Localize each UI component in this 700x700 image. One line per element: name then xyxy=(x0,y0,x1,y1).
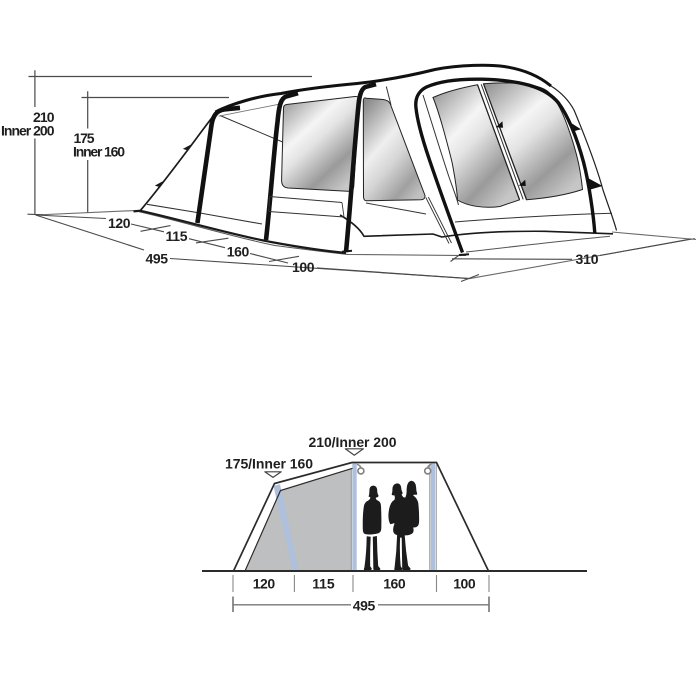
svg-text:160: 160 xyxy=(227,243,250,259)
svg-text:115: 115 xyxy=(166,228,188,244)
svg-text:100: 100 xyxy=(453,576,476,592)
svg-text:120: 120 xyxy=(253,576,276,592)
svg-text:120: 120 xyxy=(108,215,131,231)
svg-text:495: 495 xyxy=(146,250,169,266)
svg-text:495: 495 xyxy=(353,598,376,614)
svg-text:310: 310 xyxy=(576,251,599,267)
svg-text:175/Inner 160: 175/Inner 160 xyxy=(225,455,313,471)
svg-text:210/Inner 200: 210/Inner 200 xyxy=(309,434,397,450)
svg-text:100: 100 xyxy=(292,259,315,275)
svg-text:160: 160 xyxy=(383,576,406,592)
svg-text:Inner 160: Inner 160 xyxy=(73,144,125,160)
svg-text:115: 115 xyxy=(312,576,335,592)
svg-text:Inner 200: Inner 200 xyxy=(1,122,55,138)
